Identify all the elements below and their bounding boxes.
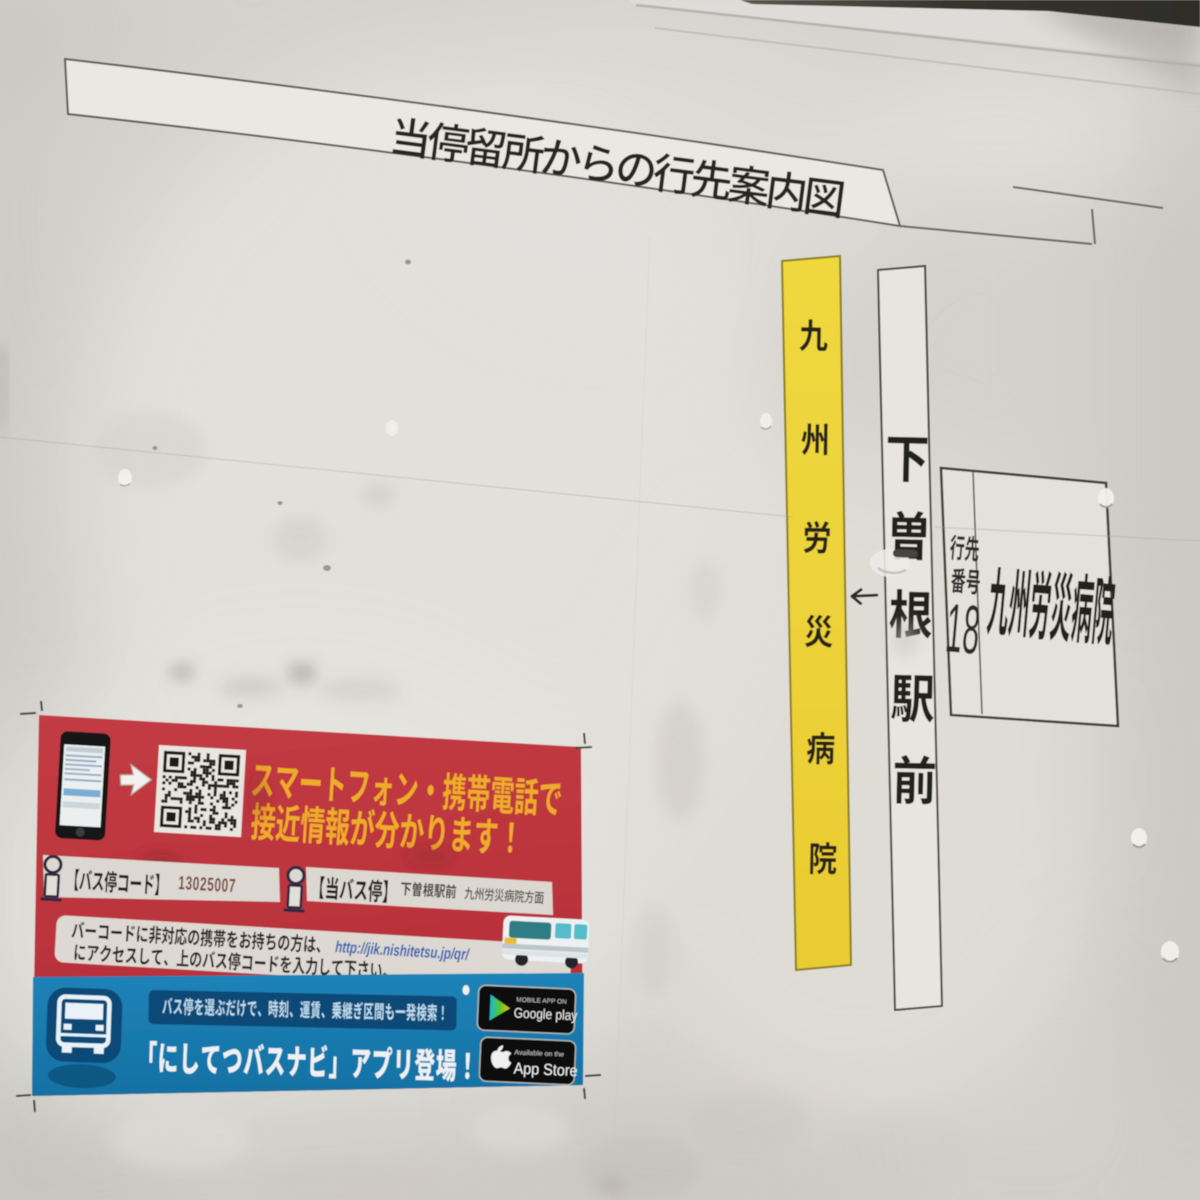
- svg-text:App Store: App Store: [513, 1060, 578, 1081]
- svg-text:13025007: 13025007: [178, 873, 237, 897]
- svg-text:Google play: Google play: [513, 1005, 578, 1024]
- svg-text:18: 18: [943, 590, 983, 669]
